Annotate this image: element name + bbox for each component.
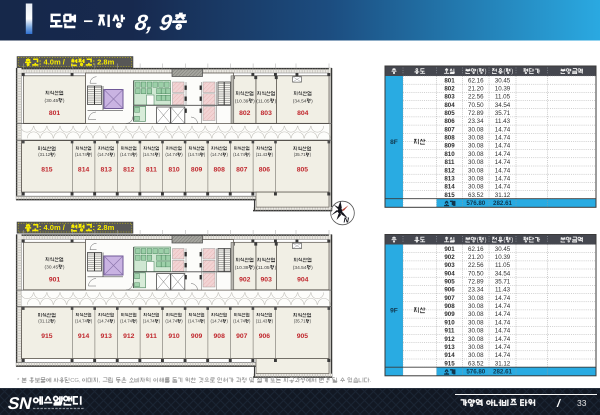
svg-text:72.89: 72.89 [468,110,484,117]
svg-text:30.08: 30.08 [468,151,484,158]
svg-text:34.54: 34.54 [495,270,511,277]
svg-text:30.08: 30.08 [468,143,484,150]
svg-text:805: 805 [444,110,455,117]
svg-text:30.08: 30.08 [468,184,484,191]
svg-text:(14.74: (14.74 [120,152,133,157]
svg-text:22.56: 22.56 [468,262,484,269]
svg-text:911: 911 [146,333,157,340]
svg-text:,: , [99,378,101,384]
svg-text:(11.05: (11.05 [256,98,270,104]
svg-text:(: ( [503,237,505,244]
svg-text:(34.54: (34.54 [293,98,307,104]
svg-text:33: 33 [577,398,587,408]
svg-text:14.74: 14.74 [495,311,511,318]
svg-text:N: N [344,216,350,225]
svg-text:(14.74: (14.74 [98,152,111,157]
svg-text:(: ( [477,68,479,75]
svg-text:30.08: 30.08 [468,336,484,343]
svg-text:901: 901 [49,277,61,284]
svg-text:30.08: 30.08 [468,319,484,326]
svg-text:14.74: 14.74 [495,336,511,343]
svg-text:808: 808 [444,135,455,142]
svg-text:(: ( [503,68,505,75]
svg-text:902: 902 [239,277,251,284]
svg-text:14.74: 14.74 [495,135,511,142]
svg-text:): ) [484,68,486,75]
svg-text:(30.45: (30.45 [45,264,59,270]
svg-text:14.74: 14.74 [495,352,511,359]
svg-text:30.08: 30.08 [468,167,484,174]
svg-text:(14.74: (14.74 [120,318,133,323]
svg-text:CG,: CG, [70,378,81,384]
svg-text:23.34: 23.34 [468,287,484,294]
svg-text:901: 901 [444,246,455,253]
svg-text:902: 902 [444,254,455,261]
svg-text:14.74: 14.74 [495,184,511,191]
svg-text:814: 814 [78,166,90,173]
svg-text:30.45: 30.45 [495,77,511,84]
svg-text:14.74: 14.74 [495,175,511,182]
svg-text:14.74: 14.74 [495,126,511,133]
svg-text:35.71: 35.71 [495,279,511,286]
svg-text:(14.74: (14.74 [75,318,88,323]
svg-text:14.74: 14.74 [495,159,511,166]
svg-text:(11.43: (11.43 [256,318,268,323]
svg-text:9F: 9F [390,307,398,314]
svg-text:(14.74: (14.74 [143,318,156,323]
svg-text:(14.74: (14.74 [188,152,201,157]
svg-text:(14.74: (14.74 [211,152,224,157]
svg-text:: 4.0m /: : 4.0m / [39,223,66,232]
svg-text:11.43: 11.43 [495,287,511,294]
svg-text:914: 914 [78,333,90,340]
svg-text:30.08: 30.08 [468,344,484,351]
svg-text:(31.12: (31.12 [38,318,51,323]
svg-text:912: 912 [444,336,455,343]
svg-text:801: 801 [444,77,455,84]
svg-text:10.39: 10.39 [495,254,511,261]
svg-text:576.80: 576.80 [466,200,485,207]
svg-text:: 2.8m: : 2.8m [92,223,114,232]
svg-text:(11.05: (11.05 [256,265,270,271]
svg-text:(10.39: (10.39 [235,98,249,104]
svg-text:905: 905 [297,333,309,340]
svg-text:809: 809 [444,143,455,150]
svg-text:803: 803 [444,94,455,101]
svg-text:8F: 8F [390,139,398,146]
svg-text:810: 810 [168,166,180,173]
svg-text:23.34: 23.34 [468,118,484,125]
svg-text:62.16: 62.16 [468,246,484,253]
svg-text:815: 815 [444,192,455,199]
svg-text:(14.74: (14.74 [233,318,246,323]
svg-text:14.74: 14.74 [495,319,511,326]
svg-text:11.05: 11.05 [495,94,511,101]
svg-text:576.80: 576.80 [466,369,485,376]
svg-text:(35.71: (35.71 [294,318,307,323]
svg-text:912: 912 [123,333,135,340]
svg-text:): ) [484,237,486,244]
svg-text:(14.74: (14.74 [143,152,156,157]
svg-text:: 4.0m /: : 4.0m / [39,58,66,67]
svg-text:907: 907 [236,333,248,340]
svg-text:(: ( [477,237,479,244]
svg-text:807: 807 [236,166,248,173]
svg-text:14.74: 14.74 [495,143,511,150]
svg-text:(14.74: (14.74 [165,318,178,323]
svg-text:809: 809 [191,166,203,173]
svg-text:.: . [370,378,372,384]
svg-text:914: 914 [444,352,455,359]
svg-text:910: 910 [444,319,455,326]
svg-text:63.52: 63.52 [468,360,484,367]
svg-text:907: 907 [444,295,455,302]
svg-text:909: 909 [444,311,455,318]
svg-text:(35.71: (35.71 [294,152,307,157]
svg-text:915: 915 [41,333,53,340]
svg-text:(14.74: (14.74 [98,318,111,323]
svg-text:11.43: 11.43 [495,118,511,125]
svg-text:10.39: 10.39 [495,86,511,93]
svg-text:(14.74: (14.74 [211,318,224,323]
svg-text:14.74: 14.74 [495,344,511,351]
svg-text:70.50: 70.50 [468,102,484,109]
svg-text:811: 811 [445,159,456,166]
svg-text:(10.39: (10.39 [235,265,249,271]
svg-text:34.54: 34.54 [495,102,511,109]
svg-text:22.56: 22.56 [468,94,484,101]
svg-text:30.08: 30.08 [468,175,484,182]
svg-text:11.05: 11.05 [495,262,511,269]
svg-text:908: 908 [214,333,226,340]
svg-text:: 2.8m: : 2.8m [92,58,114,67]
svg-text:(11.43: (11.43 [256,152,268,157]
svg-text:911: 911 [445,328,456,335]
svg-text:(14.74: (14.74 [75,152,88,157]
svg-text:62.16: 62.16 [468,77,484,84]
svg-text:14.74: 14.74 [495,303,511,310]
svg-text:31.12: 31.12 [495,192,511,199]
svg-text:802: 802 [239,110,251,117]
svg-text:906: 906 [259,333,271,340]
svg-text:815: 815 [41,166,53,173]
svg-text:804: 804 [444,102,455,109]
svg-text:): ) [511,237,513,244]
svg-text:): ) [511,68,513,75]
svg-text:803: 803 [261,110,273,117]
svg-text:14.74: 14.74 [495,328,511,335]
svg-text:(14.74: (14.74 [233,152,246,157]
svg-text:801: 801 [49,110,61,117]
svg-text:903: 903 [444,262,455,269]
svg-text:30.08: 30.08 [468,135,484,142]
svg-text:(34.54: (34.54 [293,265,307,271]
svg-text:908: 908 [444,303,455,310]
svg-text:806: 806 [259,166,271,173]
svg-text:906: 906 [444,287,455,294]
svg-text:30.08: 30.08 [468,311,484,318]
svg-text:35.71: 35.71 [495,110,511,117]
svg-text:904: 904 [297,277,309,284]
svg-text:8, 9: 8, 9 [133,10,174,35]
svg-text:14.74: 14.74 [495,151,511,158]
svg-text:813: 813 [444,175,455,182]
svg-text:909: 909 [191,333,203,340]
svg-text:812: 812 [444,167,455,174]
svg-text:910: 910 [168,333,180,340]
svg-text:63.52: 63.52 [468,192,484,199]
svg-text:913: 913 [101,333,113,340]
svg-text:30.08: 30.08 [468,126,484,133]
svg-text:30.08: 30.08 [468,352,484,359]
svg-text:(31.12: (31.12 [38,152,51,157]
svg-text:70.50: 70.50 [468,270,484,277]
svg-text:282.61: 282.61 [493,369,512,376]
svg-text:31.12: 31.12 [495,360,511,367]
svg-text:SN: SN [6,393,34,413]
svg-text:811: 811 [146,166,157,173]
svg-text:30.45: 30.45 [495,246,511,253]
svg-text:30.08: 30.08 [468,295,484,302]
svg-text:282.61: 282.61 [493,200,512,207]
svg-text:(14.74: (14.74 [188,318,201,323]
svg-text:915: 915 [444,360,455,367]
svg-text:903: 903 [261,277,273,284]
svg-text:812: 812 [123,166,135,173]
svg-text:813: 813 [101,166,113,173]
svg-text:72.89: 72.89 [468,279,484,286]
svg-text:14.74: 14.74 [495,295,511,302]
svg-text:904: 904 [444,270,455,277]
svg-text:14.74: 14.74 [495,167,511,174]
svg-text:804: 804 [297,110,309,117]
svg-text:30.08: 30.08 [468,328,484,335]
svg-text:805: 805 [297,166,309,173]
svg-text:814: 814 [444,184,455,191]
svg-text:(30.45: (30.45 [45,98,59,104]
svg-text:21.20: 21.20 [468,86,484,93]
svg-text:807: 807 [444,126,455,133]
svg-text:802: 802 [444,86,455,93]
svg-text:(14.74: (14.74 [165,152,178,157]
svg-text:21.20: 21.20 [468,254,484,261]
svg-text:913: 913 [444,344,455,351]
svg-text:30.08: 30.08 [468,159,484,166]
svg-text:810: 810 [444,151,455,158]
svg-text:*: * [17,378,20,384]
svg-text:806: 806 [444,118,455,125]
svg-text:30.08: 30.08 [468,303,484,310]
svg-text:905: 905 [444,279,455,286]
svg-text:808: 808 [214,166,226,173]
